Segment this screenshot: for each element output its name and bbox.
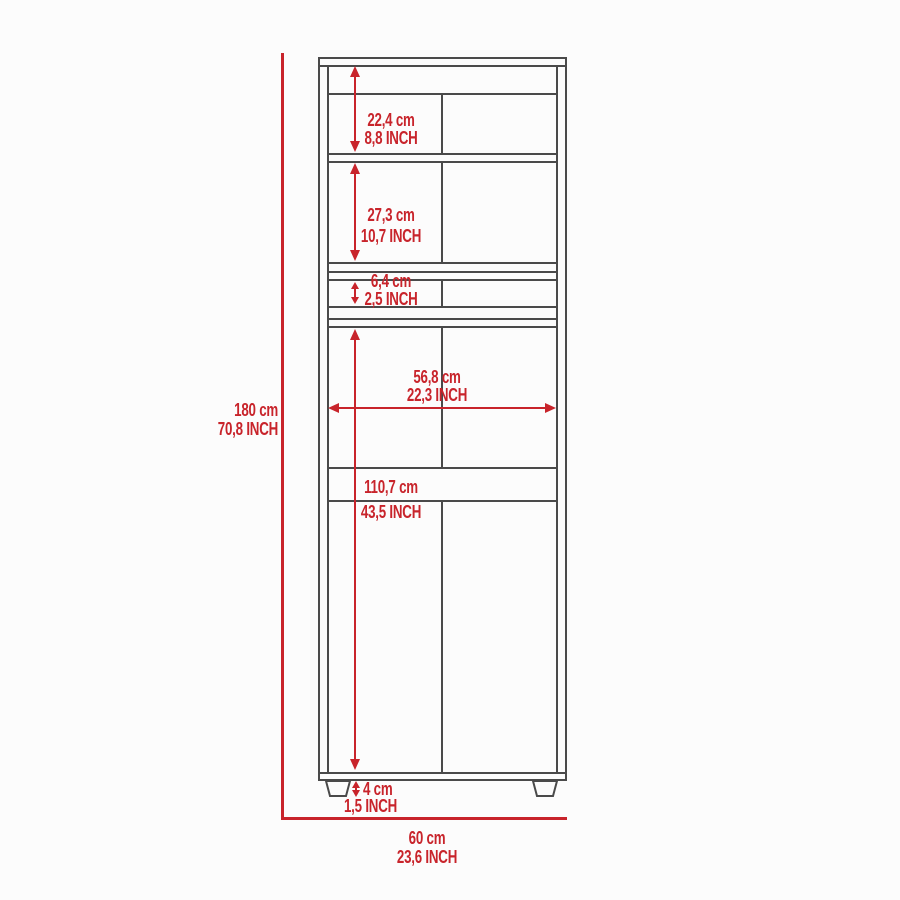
drawer-band-top-line <box>327 467 558 469</box>
center-divider-segment-3 <box>441 279 443 306</box>
center-divider-segment-1 <box>441 93 443 153</box>
cabinet-right-outer-edge <box>565 57 567 781</box>
cabinet-top-outer-line <box>318 57 567 59</box>
dim-top-compartment-cm: 22,4 cm <box>347 110 436 130</box>
shelf-line-6a <box>327 318 558 320</box>
cabinet-left-outer-edge <box>318 57 320 781</box>
arrow-stem <box>339 407 545 409</box>
arrowhead-down <box>350 759 360 770</box>
dim-top-compartment-inch: 8,8 INCH <box>347 128 436 148</box>
dim-small-compartment-inch: 2,5 INCH <box>347 289 436 309</box>
dim-interior-width-cm: 56,8 cm <box>393 367 482 387</box>
arrowhead-up <box>352 781 360 788</box>
shelf-line-3a <box>327 262 558 264</box>
dim-middle-compartment-cm: 27,3 cm <box>347 205 436 225</box>
arrowhead-left <box>328 403 339 413</box>
arrowhead-up <box>350 329 360 340</box>
dimension-arrow-foot-height <box>350 781 362 797</box>
dim-overall-width-cm: 60 cm <box>383 828 472 848</box>
arrowhead-up <box>350 163 360 174</box>
overall-width-dimension-line <box>281 817 567 820</box>
dimension-arrow-lower-section <box>349 329 361 770</box>
cabinet-right-inner-edge <box>556 65 558 772</box>
dim-lower-section-inch: 43,5 INCH <box>347 502 436 522</box>
overall-height-dimension-line <box>281 53 284 820</box>
center-divider-segment-2 <box>441 161 443 262</box>
center-divider-segment-5 <box>441 500 443 772</box>
dim-middle-compartment-inch: 10,7 INCH <box>347 226 436 246</box>
dim-overall-height-cm: 180 cm <box>189 400 278 420</box>
dim-foot-height-inch: 1,5 INCH <box>344 796 397 816</box>
dim-interior-width-inch: 22,3 INCH <box>393 385 482 405</box>
dim-overall-width-inch: 23,6 INCH <box>383 847 472 867</box>
arrowhead-down <box>350 250 360 261</box>
shelf-line-2a <box>327 153 558 155</box>
cabinet-foot-right <box>532 780 558 798</box>
dimension-diagram: 180 cm 70,8 INCH 22,4 cm 8,8 INCH 27,3 c… <box>0 0 900 900</box>
cabinet-left-inner-edge <box>327 65 329 772</box>
dim-lower-section-cm: 110,7 cm <box>347 477 436 497</box>
arrowhead-right <box>545 403 556 413</box>
dim-overall-height-inch: 70,8 INCH <box>189 419 278 439</box>
dim-small-compartment-cm: 6,4 cm <box>347 271 436 291</box>
cabinet-bottom-inner-line <box>318 772 567 774</box>
arrowhead-up <box>350 66 360 77</box>
